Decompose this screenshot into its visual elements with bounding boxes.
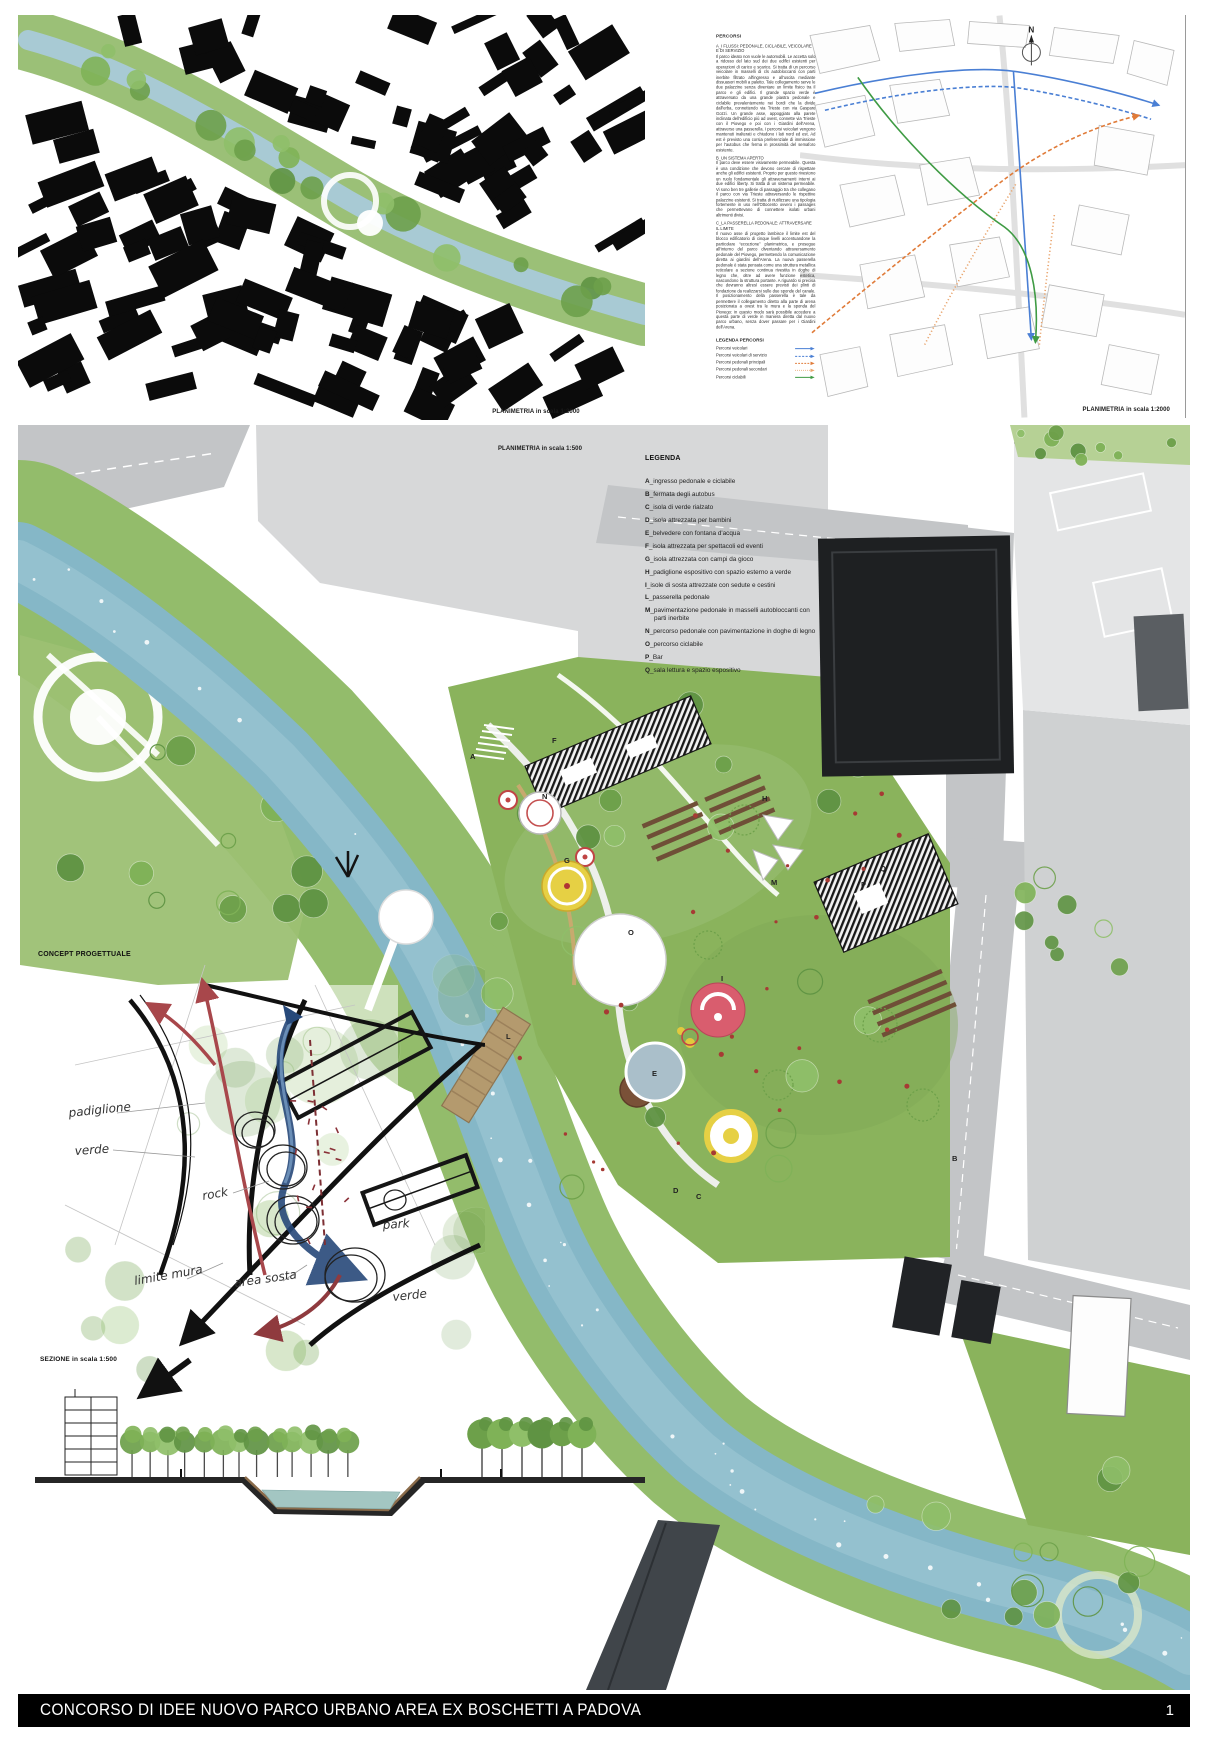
concept-title: CONCEPT PROGETTUALE [38,951,131,958]
figure-ground-map [18,15,645,420]
legend-row-pedonali-secondari: Percorsi pedonali secondari [716,368,815,373]
legend-item: L_passerella pedonale [645,594,817,602]
legend-label: Percorsi veicolari [716,347,747,351]
people-figures [180,1469,502,1477]
annotation-verde-east: verde [392,1286,428,1304]
veicolari-line-symbol [794,346,815,351]
legend-item: Q_sala lettura e spazio espositivo [645,667,817,675]
legend-title: LEGENDA [645,455,817,462]
plan-letter-c: C [696,1192,702,1201]
plan-letter-n: N [542,792,547,801]
plan-letter-l: L [506,1032,511,1041]
pedonali-principali-line-symbol [794,361,815,366]
pink-circle [691,983,745,1037]
top-right-map-caption: PLANIMETRIA in scala 1:2000 [1030,407,1170,413]
plan-letter-o: O [628,928,634,937]
percorsi-title: PERCORSI [716,34,815,39]
servizio-line-symbol [794,354,815,359]
legend-item: H_padiglione espositivo con spazio ester… [645,569,817,577]
annotation-padiglione: padiglione [67,1100,132,1121]
legend-item: O_percorso ciclabile [645,641,817,649]
legend-row-servizio: Percorsi veicolari di servizio [716,354,815,359]
concept-sketch: padiglione verde rock verde park limite … [55,945,485,1415]
percorsi-heading-c: C_LA PASSERELLA PEDONALE: ATTRAVERSARE I… [716,222,815,232]
annotation-park: park [381,1216,411,1232]
plaza-circle [357,210,383,236]
plan-letter-g: G [564,856,570,865]
legend-item: F_isola attrezzata per spettacoli ed eve… [645,543,817,551]
section-drawing [30,1382,650,1552]
legend-item: A_ingresso pedonale e ciclabile [645,478,817,486]
legend-label: Percorsi pedonali principali [716,361,765,365]
percorsi-body-b: Il parco deve essere visivamente permeab… [716,162,815,219]
legend-item: D_isola attrezzata per bambini [645,517,817,525]
basin-water [262,1490,400,1509]
annotation-limite-mura: limite mura [133,1262,204,1288]
section-title: SEZIONE in scala 1:500 [40,1356,117,1363]
legend-item: G_isola attrezzata con campi da gioco [645,556,817,564]
plan-letter-f: F [552,736,557,745]
legend-item: M_pavimentazione pedonale in masselli au… [645,607,817,622]
legend-row-pedonali-principali: Percorsi pedonali principali [716,361,815,366]
legend-label: Percorsi veicolari di servizio [716,354,767,358]
title-bar: CONCORSO DI IDEE NUOVO PARCO URBANO AREA… [18,1694,1190,1727]
master-plan-legend: LEGENDA A_ingresso pedonale e ciclabile … [645,455,817,680]
tree-row-west [120,1424,359,1477]
tall-building [1134,614,1189,711]
tree-row-east [467,1417,596,1477]
event-circle [574,914,666,1006]
annotation-verde-west: verde [74,1142,109,1158]
legend-item: N_percorso pedonale con pavimentazione i… [645,628,817,636]
legend-label: Percorsi ciclabili [716,375,746,379]
plan-letter-m: M [771,878,777,887]
plan-letter-q: Q [880,864,886,873]
legend-item: E_belvedere con fontana d'acqua [645,530,817,538]
pedonali-secondari-line-symbol [794,368,815,373]
board-title: CONCORSO DI IDEE NUOVO PARCO URBANO AREA… [40,1701,641,1720]
percorsi-heading-a: A_I FLUSSI: PEDONALE, CICLABILE, VEICOLA… [716,45,815,55]
plan-letter-e: E [652,1069,657,1078]
annotation-rock: rock [201,1185,230,1203]
legend-row-ciclabili: Percorsi ciclabili [716,375,815,380]
ciclabili-line-symbol [794,375,815,380]
plan-letter-d: D [673,1186,679,1195]
dark-building [818,535,1014,776]
legend-label: Percorsi pedonali secondari [716,368,767,372]
percorsi-legend-title: LEGENDA PERCORSI [716,338,815,343]
plan-letter-p: P [861,880,866,889]
north-label: N [1029,25,1035,34]
page-number: 1 [1166,1702,1174,1719]
plan-letter-a: A [470,752,476,761]
northeast-blocks [1010,425,1190,725]
percorsi-body-c: Il nuovo asse di progetto lambisce il li… [716,232,815,331]
legend-item: B_fermata degli autobus [645,491,817,499]
helipad-circle [519,792,561,834]
annotation-area-sosta: area sosta [233,1267,297,1290]
plan-letter-i: I [721,974,723,983]
top-left-map-caption: PLANIMETRIA in scala 1:2000 [466,409,606,415]
master-plan-caption: PLANIMETRIA in scala 1:500 [470,446,610,452]
legend-item: I_isole di sosta attrezzate con sedute e… [645,582,817,590]
plan-letter-h: H [762,794,767,803]
legend-item: C_isola di verde rialzato [645,504,817,512]
section-building [65,1389,117,1475]
plan-letter-b: B [952,1154,958,1163]
competition-board: { "board": { "title": "CONCORSO DI IDEE … [0,0,1208,1740]
routes-map: N [800,15,1186,418]
legend-item: P_Bar [645,654,817,662]
legend-row-veicolari: Percorsi veicolari [716,346,815,351]
percorsi-body-a: Il parco ideato non vuole le automobili.… [716,55,815,154]
